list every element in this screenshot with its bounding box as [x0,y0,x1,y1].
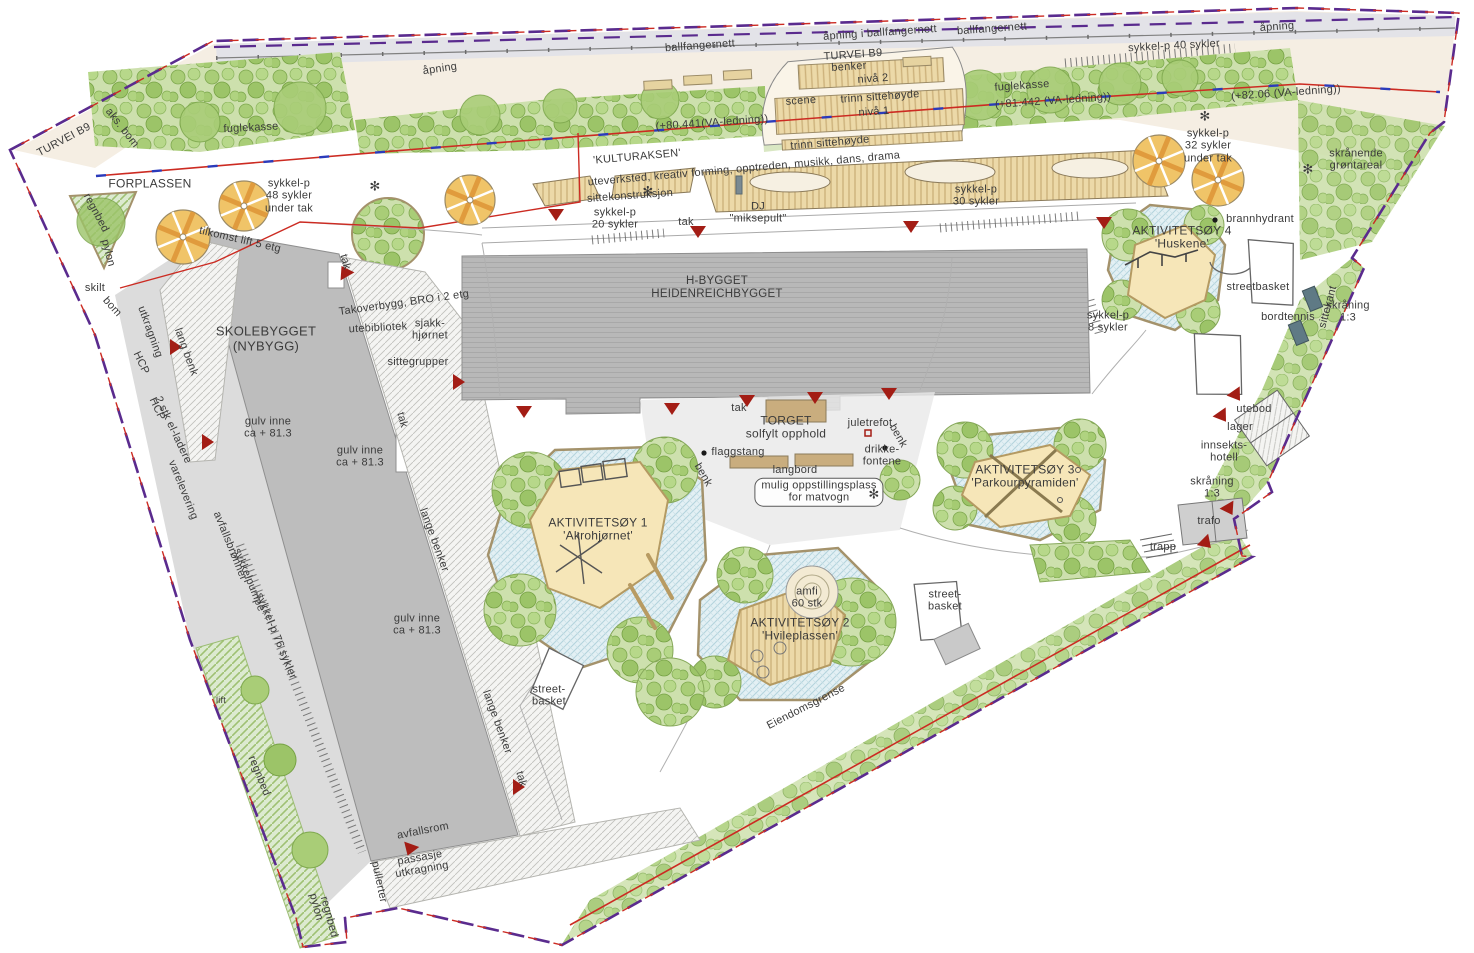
tree [241,676,269,704]
bike-canopy-hub-icon [241,203,247,209]
bike-canopy-hub-icon [180,234,186,240]
tree [292,832,328,868]
dj-miksepult-desk [736,176,742,194]
skranende-grontareal-area [1298,100,1445,260]
tree-cluster-school-ne [352,198,424,270]
bike-canopy-hub-icon [467,197,473,203]
langbord-table-1 [730,456,788,468]
activity-island-1 [484,437,706,683]
point-marker-icon [1212,217,1217,222]
point-marker-icon [882,445,887,450]
activity-island-3 [933,419,1106,544]
activity-island-4 [1102,205,1225,334]
site-plan-stage: ballfangernettåpning i ballfangernettbal… [0,0,1474,953]
point-marker-icon [701,450,706,455]
bike-canopy-hub-icon [1156,158,1162,164]
tree-cluster [880,460,920,500]
bike-canopy-hub-icon [1215,177,1221,183]
langbord-table-2 [795,454,853,466]
torget-deck [766,400,826,422]
tree-cluster [636,658,704,726]
tree [264,744,296,776]
h-bygget-building [462,249,1090,414]
tree [77,198,125,246]
site-plan-drawing [0,0,1474,953]
